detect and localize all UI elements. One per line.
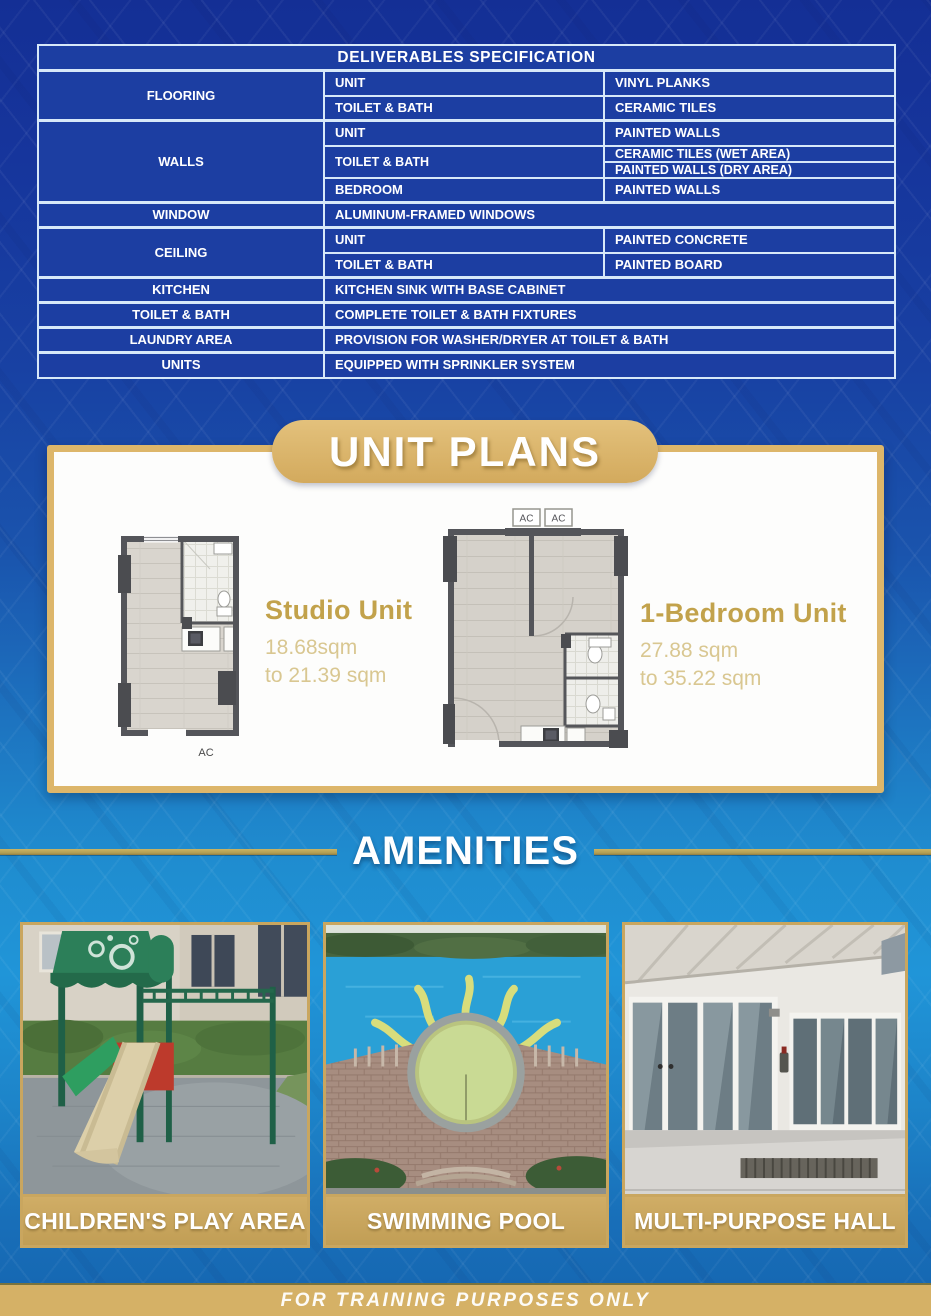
spec-walls-tb-label: TOILET & BATH: [324, 146, 604, 178]
spec-ceiling-tb-label: TOILET & BATH: [324, 253, 604, 278]
amenity-card-multi-purpose-hall: MULTI-PURPOSE HALL: [622, 922, 908, 1248]
spec-category-ceiling: CEILING: [38, 228, 324, 278]
swimming-pool-illustration: [326, 925, 606, 1194]
spec-walls-tb-value-wet: CERAMIC TILES (WET AREA): [604, 146, 895, 162]
amenities-grid: CHILDREN'S PLAY AREA: [20, 922, 908, 1248]
amenities-rule-right: [594, 849, 931, 855]
spec-category-units: UNITS: [38, 353, 324, 378]
spec-ceiling-tb-value: PAINTED BOARD: [604, 253, 895, 278]
children-play-area-photo: [23, 925, 307, 1197]
multi-purpose-hall-photo: [625, 925, 905, 1197]
spec-flooring-tb-label: TOILET & BATH: [324, 96, 604, 121]
spec-laundry-value: PROVISION FOR WASHER/DRYER AT TOILET & B…: [324, 328, 895, 353]
swimming-pool-photo: [326, 925, 606, 1197]
footer-bar: FOR TRAINING PURPOSES ONLY: [0, 1283, 931, 1316]
amenities-header: AMENITIES: [0, 829, 931, 874]
studio-unit-label-block: Studio Unit 18.68sqm to 21.39 sqm: [265, 595, 412, 691]
studio-area-to: to 21.39 sqm: [265, 662, 412, 690]
onebr-ac-label-left: AC: [520, 514, 534, 525]
spec-walls-unit-label: UNIT: [324, 121, 604, 146]
one-bedroom-area-from: 27.88 sqm: [640, 637, 847, 665]
one-bedroom-unit-label-block: 1-Bedroom Unit 27.88 sqm to 35.22 sqm: [640, 598, 847, 694]
spec-table-title: DELIVERABLES SPECIFICATION: [38, 45, 895, 71]
studio-unit-area: 18.68sqm to 21.39 sqm: [265, 634, 412, 691]
spec-category-toilet-bath: TOILET & BATH: [38, 303, 324, 328]
spec-flooring-unit-value: VINYL PLANKS: [604, 71, 895, 96]
spec-ceiling-unit-label: UNIT: [324, 228, 604, 253]
spec-walls-unit-value: PAINTED WALLS: [604, 121, 895, 146]
spec-units-value: EQUIPPED WITH SPRINKLER SYSTEM: [324, 353, 895, 378]
amenity-card-swimming-pool: SWIMMING POOL: [323, 922, 609, 1248]
children-play-area-illustration: [23, 925, 307, 1194]
spec-ceiling-unit-value: PAINTED CONCRETE: [604, 228, 895, 253]
spec-walls-bedroom-value: PAINTED WALLS: [604, 178, 895, 203]
spec-flooring-unit-label: UNIT: [324, 71, 604, 96]
one-bedroom-area-to: to 35.22 sqm: [640, 665, 847, 693]
multi-purpose-hall-illustration: [625, 925, 905, 1194]
unit-plans-title: UNIT PLANS: [329, 428, 601, 476]
caption-bar-play-area: CHILDREN'S PLAY AREA: [23, 1197, 307, 1245]
amenities-title: AMENITIES: [352, 829, 579, 874]
spec-category-laundry: LAUNDRY AREA: [38, 328, 324, 353]
amenities-rule-left: [0, 849, 337, 855]
spec-walls-bedroom-label: BEDROOM: [324, 178, 604, 203]
spec-window-value: ALUMINUM-FRAMED WINDOWS: [324, 203, 895, 228]
studio-floor-plan: AC: [118, 533, 242, 763]
studio-ac-label: AC: [198, 747, 213, 759]
studio-unit-name: Studio Unit: [265, 595, 412, 626]
flyer-page: DELIVERABLES SPECIFICATION FLOORING UNIT…: [0, 0, 931, 1316]
spec-category-walls: WALLS: [38, 121, 324, 203]
caption-swimming-pool: SWIMMING POOL: [367, 1208, 565, 1235]
one-bedroom-unit-name: 1-Bedroom Unit: [640, 598, 847, 629]
caption-bar-multi-purpose-hall: MULTI-PURPOSE HALL: [625, 1197, 905, 1245]
unit-plans-panel: AC Studio Unit 18.68sqm to 21.39 sqm: [47, 445, 884, 793]
caption-multi-purpose-hall: MULTI-PURPOSE HALL: [634, 1208, 896, 1235]
amenity-card-play-area: CHILDREN'S PLAY AREA: [20, 922, 310, 1248]
spec-category-kitchen: KITCHEN: [38, 278, 324, 303]
caption-bar-swimming-pool: SWIMMING POOL: [326, 1197, 606, 1245]
unit-plans-badge: UNIT PLANS: [272, 420, 658, 483]
one-bedroom-unit-area: 27.88 sqm to 35.22 sqm: [640, 637, 847, 694]
spec-flooring-tb-value: CERAMIC TILES: [604, 96, 895, 121]
spec-toilet-bath-value: COMPLETE TOILET & BATH FIXTURES: [324, 303, 895, 328]
one-bedroom-floor-plan: AC AC: [443, 508, 628, 752]
onebr-ac-label-right: AC: [552, 514, 566, 525]
spec-walls-tb-value-dry: PAINTED WALLS (DRY AREA): [604, 162, 895, 178]
spec-kitchen-value: KITCHEN SINK WITH BASE CABINET: [324, 278, 895, 303]
footer-disclaimer: FOR TRAINING PURPOSES ONLY: [281, 1290, 651, 1312]
spec-category-flooring: FLOORING: [38, 71, 324, 121]
spec-category-window: WINDOW: [38, 203, 324, 228]
studio-area-from: 18.68sqm: [265, 634, 412, 662]
deliverables-spec-table: DELIVERABLES SPECIFICATION FLOORING UNIT…: [37, 44, 896, 379]
caption-play-area: CHILDREN'S PLAY AREA: [24, 1208, 306, 1235]
